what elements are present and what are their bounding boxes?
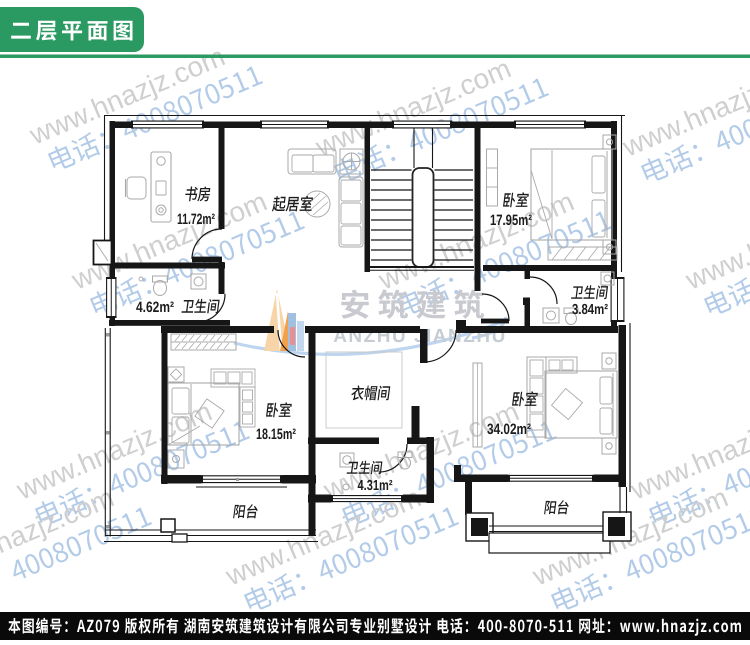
svg-text:4.31m²: 4.31m² (358, 478, 393, 494)
svg-text:4.62m²: 4.62m² (136, 299, 174, 316)
svg-text:www.hnazjz.com: www.hnazjz.com (680, 186, 750, 296)
svg-text:11.72m²: 11.72m² (177, 211, 215, 228)
svg-text:www.hnazjz.com: www.hnazjz.com (0, 482, 118, 592)
svg-text:34.02m²: 34.02m² (487, 421, 531, 438)
svg-text:18.15m²: 18.15m² (256, 426, 296, 443)
svg-text:www.hnazjz.com: www.hnazjz.com (617, 53, 750, 163)
svg-text:3.84m²: 3.84m² (572, 302, 608, 318)
svg-text:17.95m²: 17.95m² (490, 212, 532, 229)
